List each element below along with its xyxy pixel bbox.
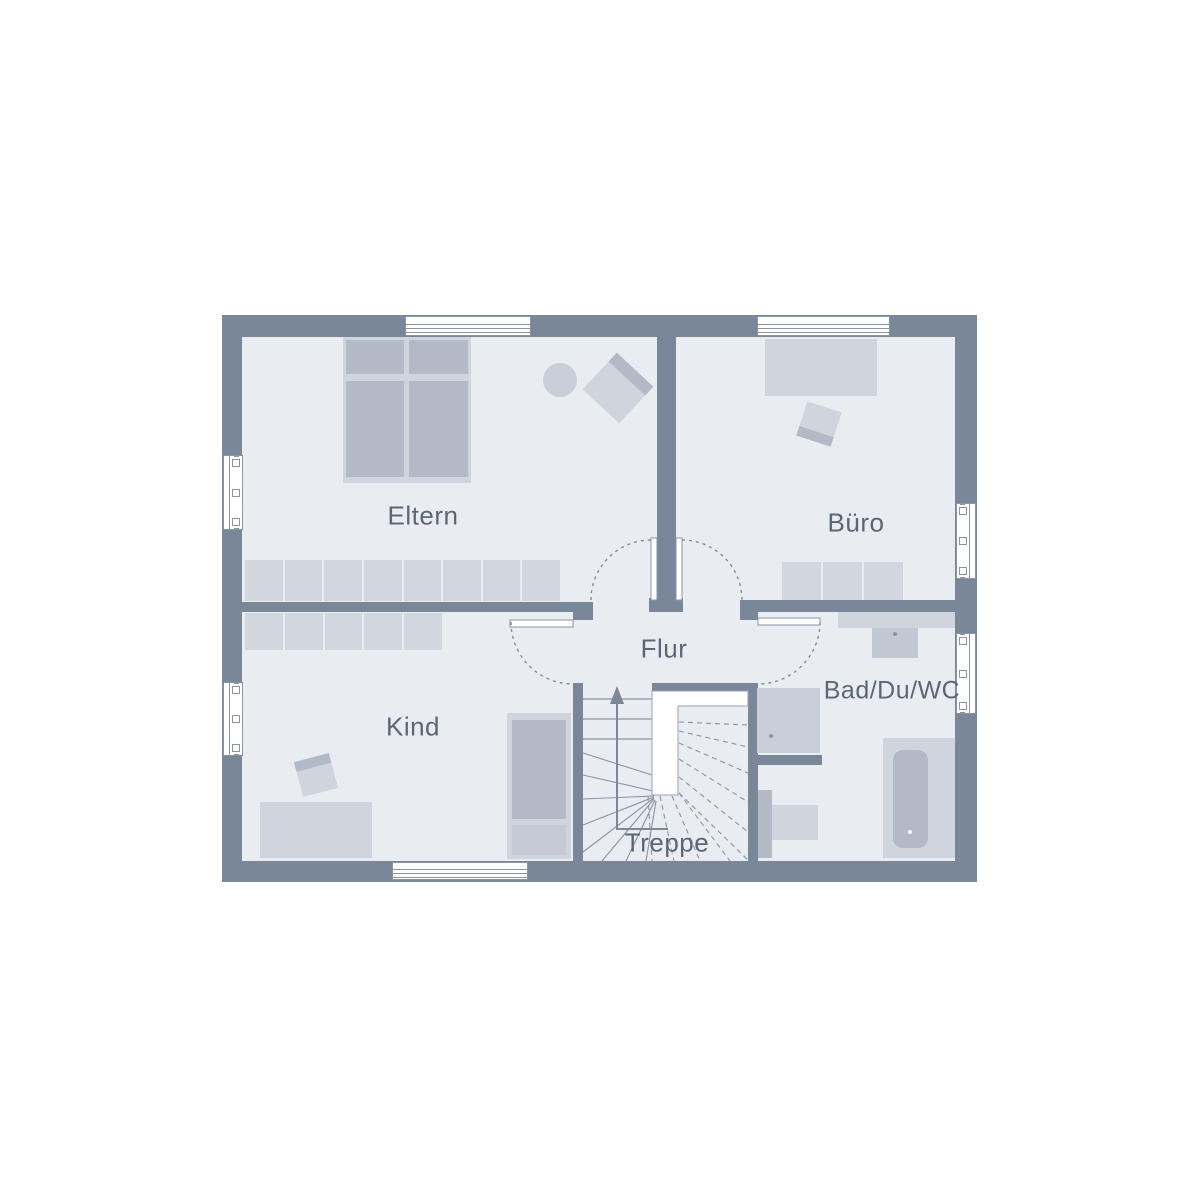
eltern-bed-mattress-left bbox=[346, 381, 404, 477]
wall-buero-bad-end bbox=[740, 600, 758, 620]
floor-plan: Eltern Büro Flur Kind Bad/Du/WC Treppe bbox=[222, 315, 977, 885]
wall-eltern-buero bbox=[657, 337, 676, 600]
room-label-buero: Büro bbox=[828, 508, 885, 539]
wall-shower-stub bbox=[758, 755, 822, 765]
room-label-flur: Flur bbox=[641, 634, 688, 665]
window-eltern-left bbox=[223, 455, 243, 530]
wall-stair-left bbox=[573, 683, 583, 861]
wall-eltern-kind-end bbox=[573, 602, 593, 620]
bad-bathtub bbox=[883, 738, 955, 858]
wall-buero-bad bbox=[740, 600, 977, 612]
eltern-bed bbox=[343, 337, 471, 483]
wall-eltern-buero-end bbox=[649, 598, 683, 612]
bad-shower bbox=[757, 688, 820, 753]
bathtub-basin bbox=[893, 750, 928, 848]
eltern-bed-pillow-right bbox=[409, 340, 468, 374]
wall-stair-top bbox=[652, 683, 758, 691]
bad-wc-bowl bbox=[772, 805, 818, 840]
wall-exterior-left bbox=[222, 315, 242, 882]
floor-plan-canvas: Eltern Büro Flur Kind Bad/Du/WC Treppe bbox=[0, 0, 1200, 1200]
kind-desk bbox=[260, 802, 372, 858]
shower-drain-dot bbox=[769, 734, 773, 738]
wall-exterior-bottom bbox=[222, 861, 977, 882]
eltern-bed-mattress-right bbox=[409, 381, 468, 477]
window-buero-right bbox=[956, 503, 976, 579]
bad-vanity bbox=[838, 612, 955, 628]
eltern-bed-pillow-left bbox=[346, 340, 404, 374]
kind-wardrobe-row bbox=[245, 613, 442, 650]
bathtub-drain-dot bbox=[908, 830, 912, 834]
window-buero-top bbox=[757, 316, 890, 336]
bad-sink bbox=[872, 628, 918, 658]
window-kind-left bbox=[223, 682, 243, 756]
room-label-bad: Bad/Du/WC bbox=[824, 677, 960, 706]
bad-wc-cistern bbox=[758, 790, 772, 858]
kind-bed bbox=[507, 713, 571, 859]
window-eltern-top bbox=[405, 316, 531, 336]
kind-bed-pillow bbox=[512, 825, 566, 855]
window-kind-bottom bbox=[392, 862, 528, 880]
room-label-kind: Kind bbox=[386, 712, 440, 743]
eltern-wardrobe-row bbox=[245, 560, 560, 601]
eltern-side-table bbox=[543, 363, 577, 397]
sink-drain-dot bbox=[893, 632, 897, 636]
wall-eltern-kind bbox=[222, 602, 593, 612]
buero-sideboard bbox=[782, 562, 903, 600]
room-label-eltern: Eltern bbox=[388, 501, 459, 532]
kind-bed-mattress bbox=[512, 720, 566, 819]
room-label-treppe: Treppe bbox=[625, 828, 709, 859]
buero-desk bbox=[765, 339, 877, 396]
wall-exterior-right bbox=[955, 315, 977, 882]
